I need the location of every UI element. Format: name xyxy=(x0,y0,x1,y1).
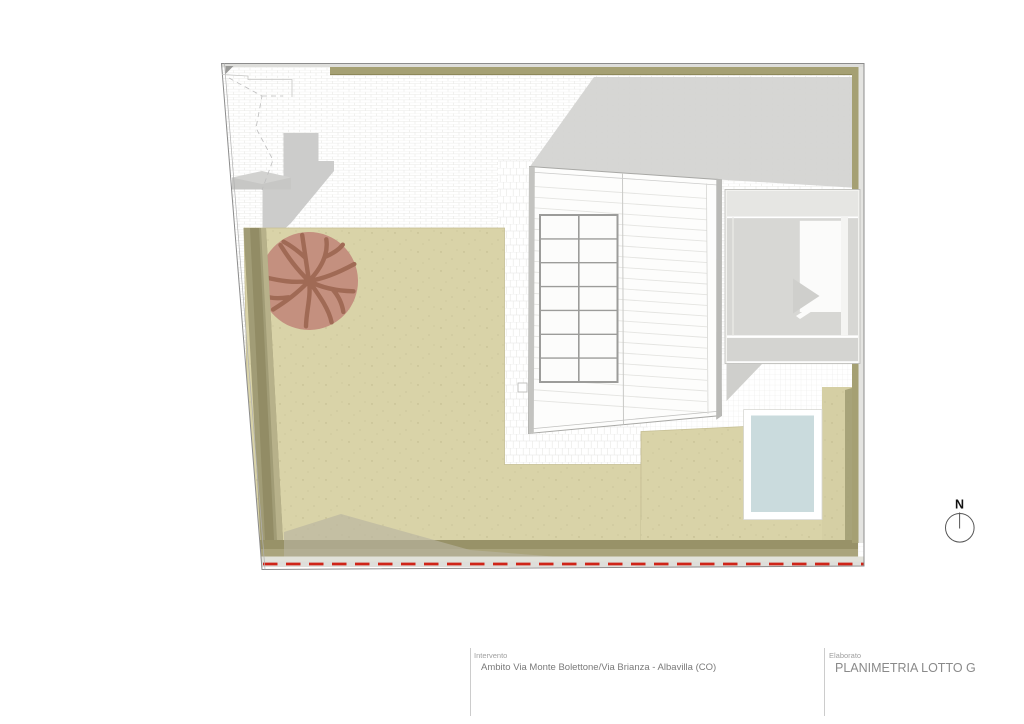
svg-text:N: N xyxy=(955,498,964,512)
